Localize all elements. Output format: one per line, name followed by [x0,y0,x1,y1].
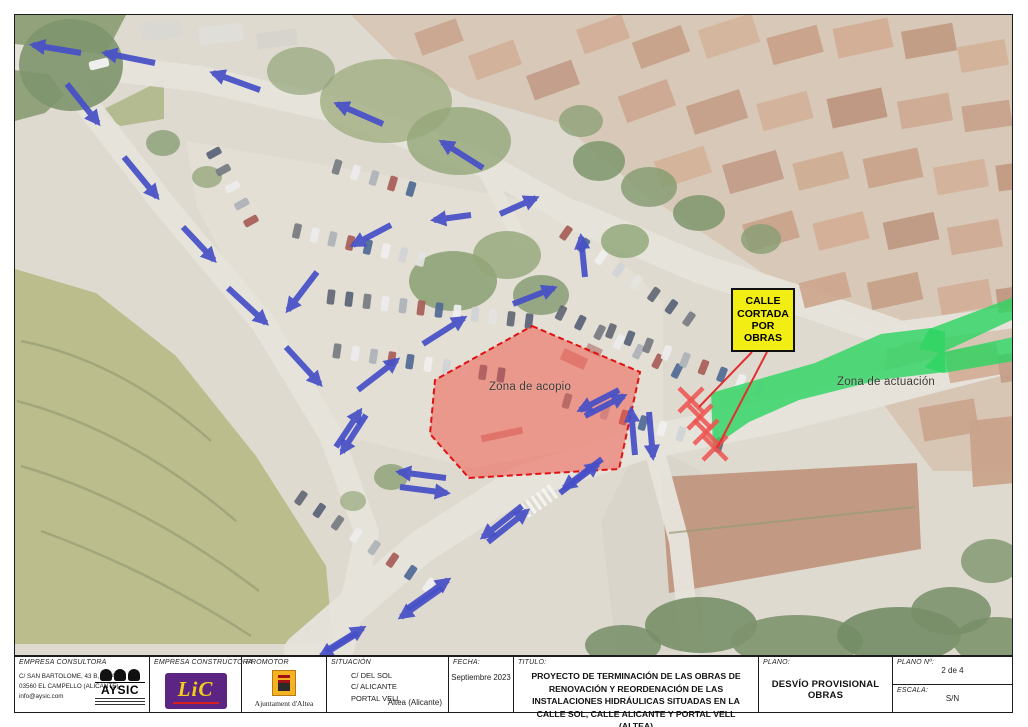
lic-logo-bar [173,702,219,704]
consultora-header: EMPRESA CONSULTORA [19,659,107,666]
aysic-logo-subtext [95,698,145,705]
plano-num-cell: PLANO Nº: 2 de 4 [893,657,1012,685]
lic-logo-text: LiC [178,679,214,700]
road-closed-sign: CALLE CORTADA POR OBRAS [731,288,795,352]
aysic-logo-icon [95,669,145,681]
promotor-name: Ajuntament d'Altea [242,699,326,708]
plano-value: DESVÍO PROVISIONAL OBRAS [759,679,892,701]
titleblock-constructora: EMPRESA CONSTRUCTORA LiC [150,657,242,712]
plano-num-value: 2 de 4 [893,666,1012,675]
promotor-header: PROMOTOR [246,659,289,666]
titleblock-situacion: SITUACIÓN C/ DEL SOL C/ ALICANTE PORTAL … [327,657,449,712]
titleblock-promotor: PROMOTOR Ajuntament d'Altea [242,657,327,712]
aysic-logo: AYSIC [95,669,145,705]
escala-value: S/N [893,694,1012,703]
plano-header: PLANO: [763,659,790,666]
aerial-map-canvas [15,15,1013,656]
situacion-municipio: Altea (Alicante) [388,698,442,707]
fecha-header: FECHA: [453,659,480,666]
fecha-value: Septiembre 2023 [449,673,513,682]
titleblock-num-escala: PLANO Nº: 2 de 4 ESCALA: S/N [893,657,1012,712]
plano-num-header: PLANO Nº: [897,659,934,666]
altea-crest-icon [272,670,296,696]
title-block: EMPRESA CONSULTORA C/ SAN BARTOLOME, 43 … [14,656,1013,713]
zona-acopio-label: Zona de acopio [475,381,585,393]
situacion-street: C/ ALICANTE [351,681,400,692]
lic-logo: LiC [165,673,227,709]
situacion-street: C/ DEL SOL [351,670,400,681]
aysic-logo-text: AYSIC [95,682,145,697]
constructora-header: EMPRESA CONSTRUCTORA [154,659,253,666]
zona-actuacion-label: Zona de actuación [811,376,961,388]
titleblock-plano: PLANO: DESVÍO PROVISIONAL OBRAS [759,657,893,712]
titleblock-fecha: FECHA: Septiembre 2023 [449,657,514,712]
aerial-map: Zona de acopio Zona de actuación CALLE C… [14,14,1013,656]
escala-cell: ESCALA: S/N [893,685,1012,712]
titleblock-titulo: TITULO: PROYECTO DE TERMINACIÓN DE LAS O… [514,657,759,712]
situacion-header: SITUACIÓN [331,659,371,666]
titulo-header: TITULO: [518,659,546,666]
titleblock-consultora: EMPRESA CONSULTORA C/ SAN BARTOLOME, 43 … [15,657,150,712]
drawing-sheet: Zona de acopio Zona de actuación CALLE C… [0,0,1028,727]
escala-header: ESCALA: [897,687,928,694]
titulo-value: PROYECTO DE TERMINACIÓN DE LAS OBRAS DE … [520,670,752,727]
